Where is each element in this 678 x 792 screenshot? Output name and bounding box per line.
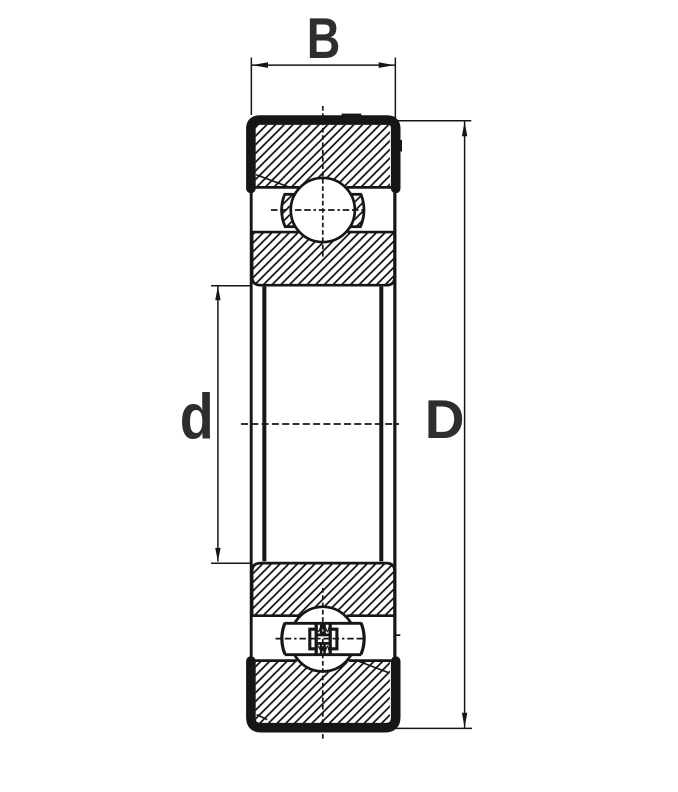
svg-text:D: D [425,388,465,450]
svg-text:B: B [307,7,341,71]
svg-text:d: d [180,381,214,452]
